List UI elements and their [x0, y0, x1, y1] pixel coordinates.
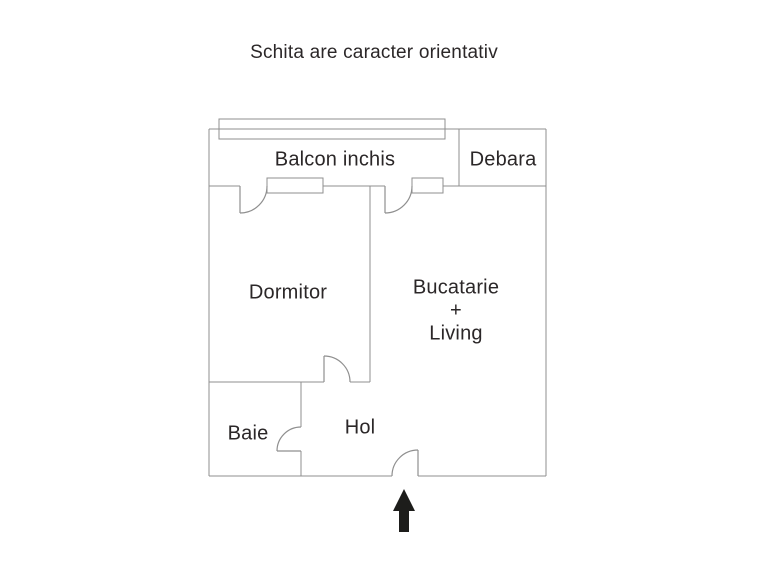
room-label-bucatarie-line2: + — [413, 300, 499, 323]
bucatarie-balcony-door — [385, 186, 412, 213]
dormitor-balcony-window — [267, 178, 323, 193]
room-label-balcon: Balcon inchis — [275, 149, 395, 172]
baie-door — [277, 427, 301, 451]
room-label-bucatarie-line3: Living — [413, 323, 499, 346]
plan-disclaimer-title: Schita are caracter orientativ — [250, 42, 498, 64]
dormitor-balcony-door — [240, 186, 267, 213]
floor-plan: Schita are caracter orientativ Balcon in… — [0, 0, 770, 578]
room-label-debara: Debara — [470, 149, 537, 172]
room-label-bucatarie-living: Bucatarie + Living — [413, 277, 499, 346]
entrance-up-arrow-icon — [393, 489, 415, 532]
room-label-bucatarie-line1: Bucatarie — [413, 277, 499, 300]
room-label-hol: Hol — [345, 417, 376, 440]
floor-plan-drawing — [0, 0, 770, 578]
room-label-baie: Baie — [228, 423, 269, 446]
room-label-dormitor: Dormitor — [249, 282, 327, 305]
entrance-door — [392, 450, 418, 476]
bucatarie-balcony-window — [412, 178, 443, 193]
dormitor-hol-door — [324, 356, 350, 382]
